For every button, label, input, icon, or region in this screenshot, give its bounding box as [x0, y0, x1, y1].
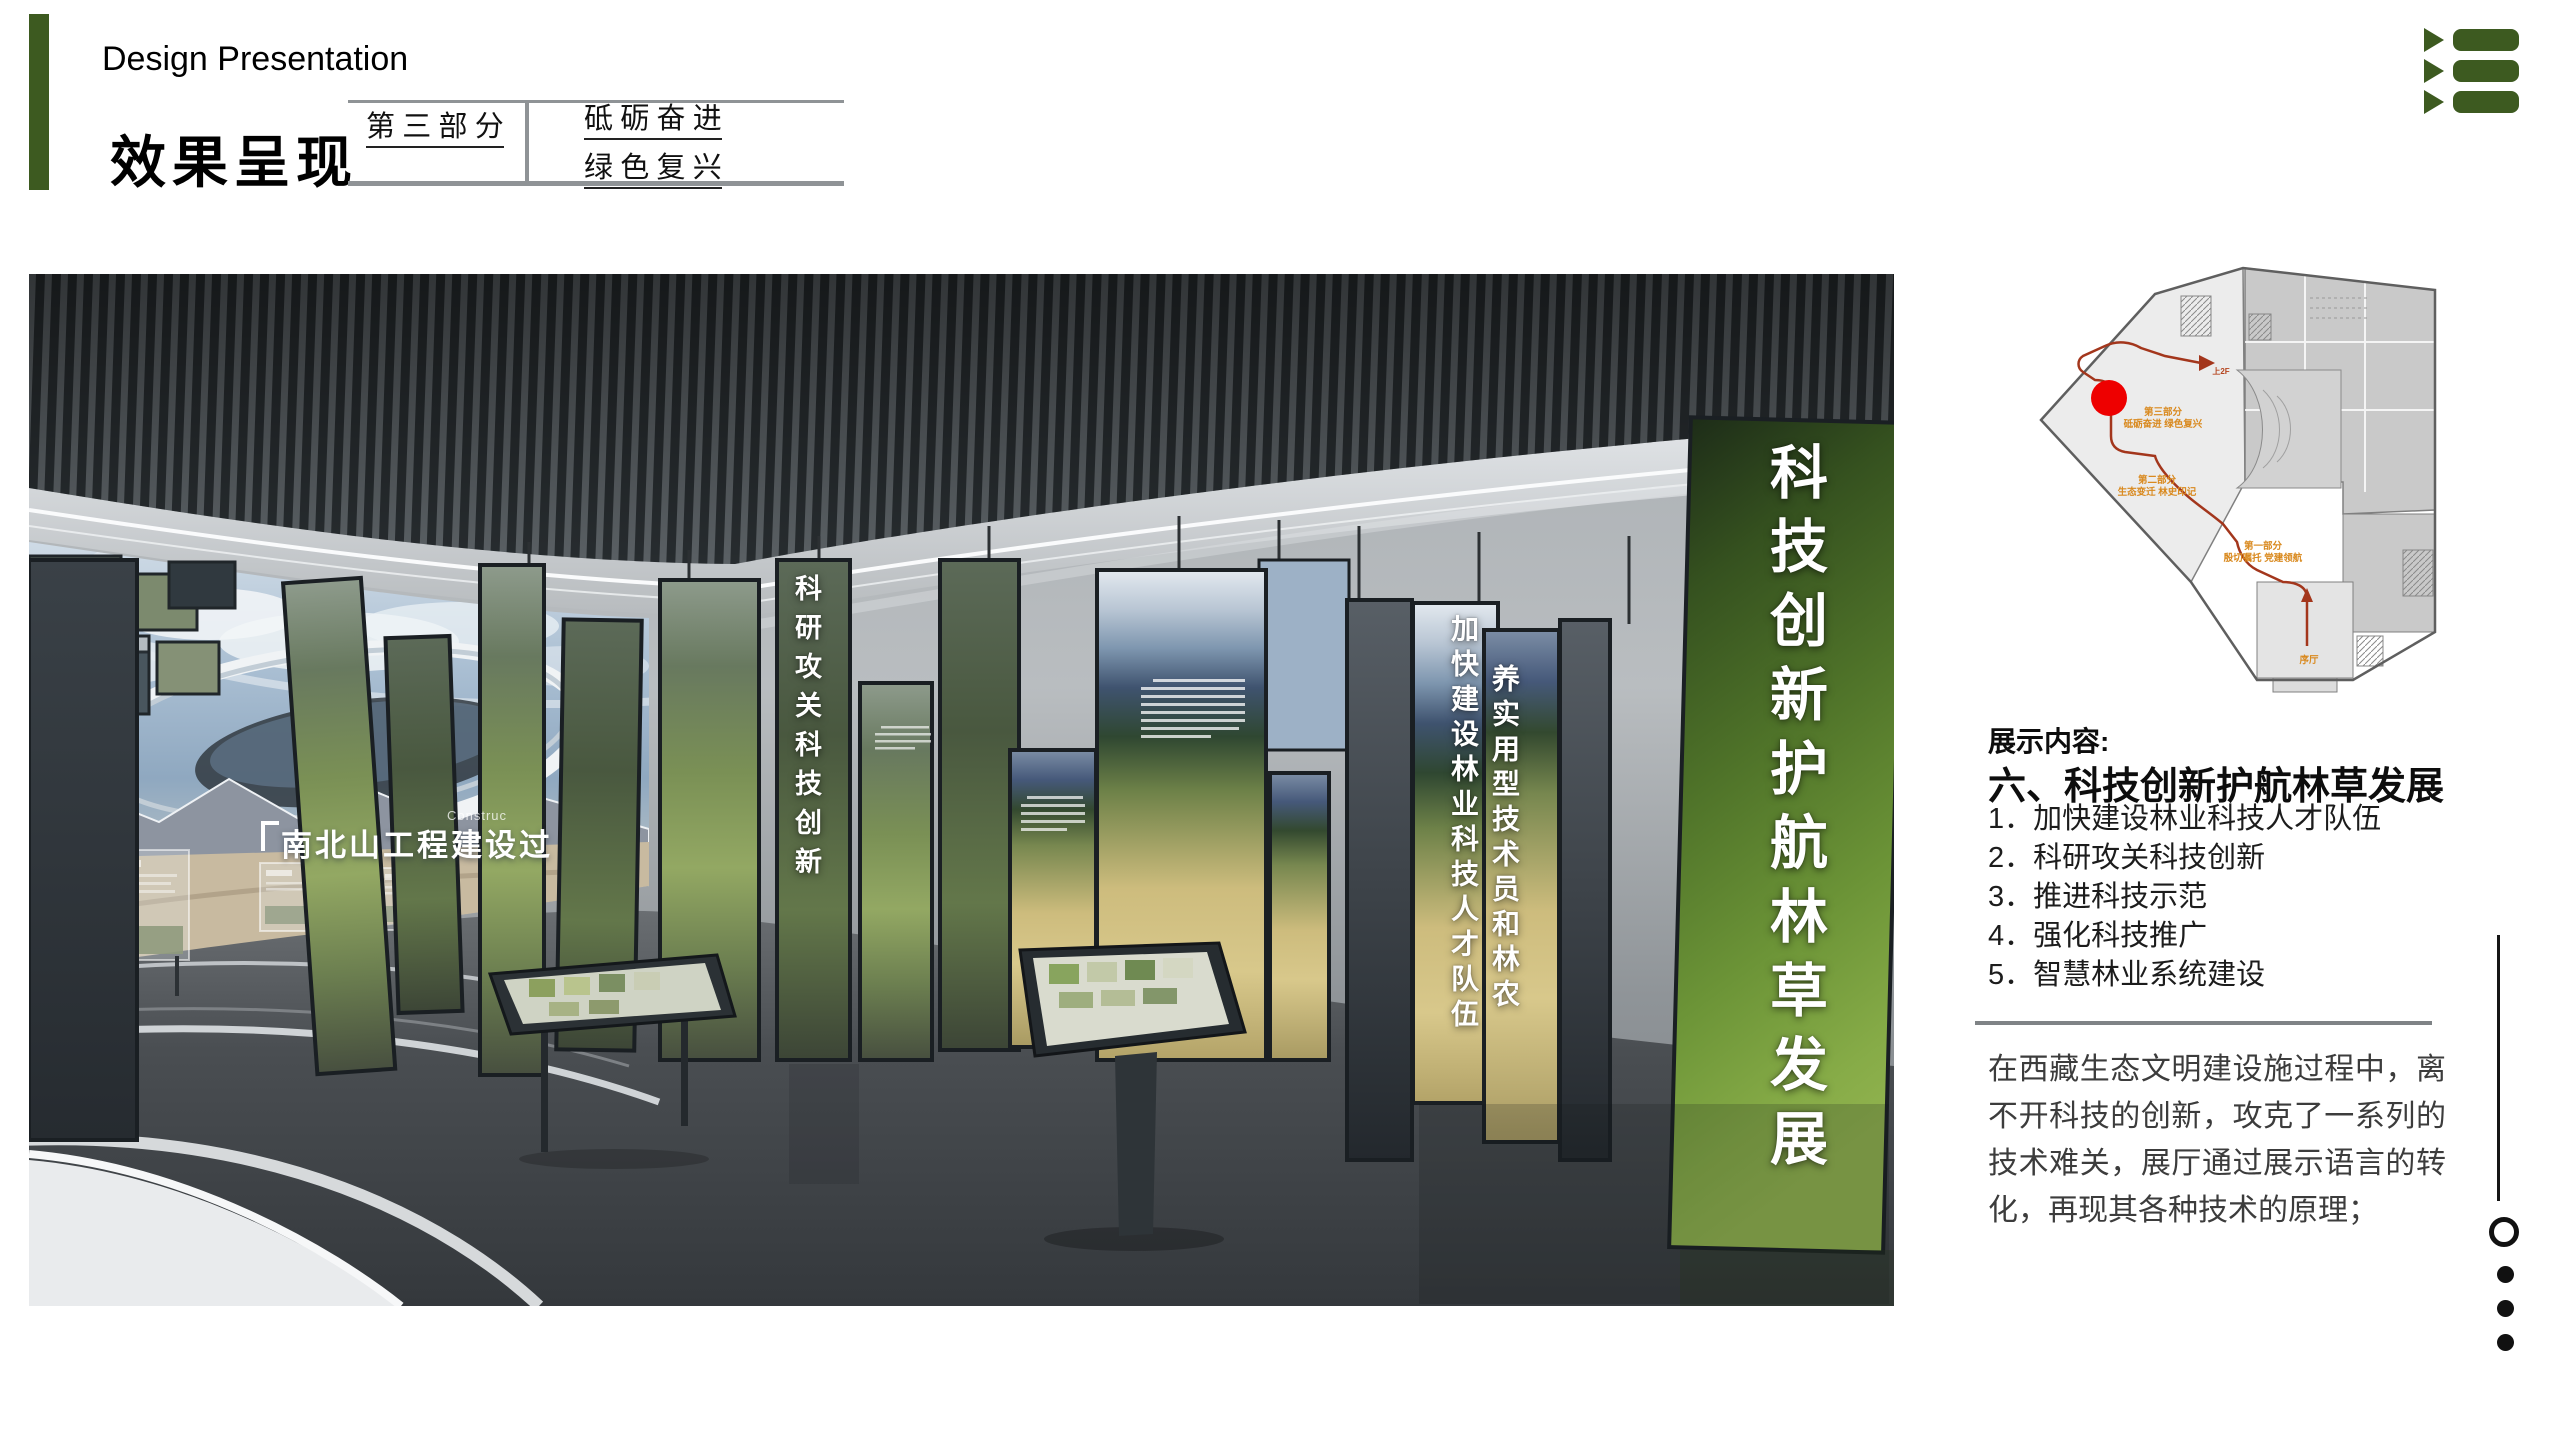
panel-text-keyan: 科研攻关科技创新: [787, 574, 826, 886]
triangle-bullet-icon: [2424, 59, 2444, 83]
content-heading: 展示内容:: [1988, 720, 2109, 760]
menu-bar: [2453, 29, 2519, 51]
part-table: 第 三 部 分 砥 砺 奋 进 绿 色 复 兴: [348, 100, 844, 186]
floorplan-label-part2-sub: 生态变迁 林史印记: [2118, 486, 2197, 498]
content-list-item: 4．强化科技推广: [1988, 917, 2381, 956]
floorplan-label-part2: 第二部分: [2138, 474, 2177, 486]
floorplan-map: 第三部分 砥砺奋进 绿色复兴 第二部分 生态变迁 林史印记 第一部分 殷切嘱托 …: [2005, 250, 2465, 710]
pager-dot[interactable]: [2497, 1266, 2514, 1283]
floorplan-label-lobby: 序厅: [2299, 654, 2319, 666]
panel-text-jiakuai: 加快建设林业科技人才队伍: [1443, 614, 1483, 1034]
menu-row: [2424, 28, 2520, 52]
part-theme-line1: 砥 砺 奋 进: [584, 95, 722, 140]
content-list-item: 2．科研攻关科技创新: [1988, 839, 2381, 878]
content-list-item: 1．加快建设林业科技人才队伍: [1988, 800, 2381, 839]
menu-row: [2424, 90, 2520, 114]
page-title: 效果呈现: [110, 118, 358, 199]
render-scene: [29, 274, 1894, 1306]
triangle-bullet-icon: [2424, 28, 2444, 52]
current-location-dot: [2091, 380, 2127, 416]
floorplan-rooms: [2041, 268, 2435, 692]
part-label: 第 三 部 分: [366, 103, 504, 148]
description-paragraph: 在西藏生态文明建设施过程中，离不开科技的创新，攻克了一系列的技术难关，展厅通过展…: [1988, 1046, 2446, 1234]
menu-row: [2424, 59, 2520, 83]
screen-title-text: 南北山工程建设过: [281, 820, 553, 865]
horizontal-divider: [1975, 1021, 2432, 1025]
vertical-rule: [2497, 935, 2500, 1201]
slide-page: Design Presentation 效果呈现 第 三 部 分 砥 砺 奋 进…: [0, 0, 2560, 1440]
slide-subtitle: Design Presentation: [102, 40, 408, 79]
floorplan-label-to-2f: 上2F: [2212, 366, 2229, 376]
content-list-item: 3．推进科技示范: [1988, 878, 2381, 917]
part-theme-cell: 砥 砺 奋 进 绿 色 复 兴: [529, 103, 844, 181]
panel-text-main-theme: 科技创新护航林草发展: [1751, 442, 1835, 1182]
pager-dot[interactable]: [2497, 1334, 2514, 1351]
accent-bar: [29, 14, 49, 190]
pager-current-indicator[interactable]: [2489, 1217, 2519, 1247]
floorplan-label-part3-sub: 砥砺奋进 绿色复兴: [2124, 418, 2203, 430]
list-menu-icon[interactable]: [2424, 28, 2520, 114]
menu-bar: [2453, 60, 2519, 82]
sky-panel: [1259, 560, 1349, 750]
content-list: 1．加快建设林业科技人才队伍 2．科研攻关科技创新 3．推进科技示范 4．强化科…: [1988, 800, 2381, 995]
panel-text-yang: 养实用型技术员和林农: [1484, 664, 1524, 1014]
part-theme-line2: 绿 色 复 兴: [584, 144, 722, 189]
part-label-cell: 第 三 部 分: [348, 103, 529, 181]
pager-dot[interactable]: [2497, 1300, 2514, 1317]
floorplan-label-part1: 第一部分: [2244, 540, 2283, 552]
screen-title-english: Construc: [447, 808, 507, 823]
floorplan-label-part1-sub: 殷切嘱托 党建领航: [2223, 552, 2303, 564]
dark-glass-panel: [29, 560, 137, 1140]
floorplan-label-part3: 第三部分: [2144, 406, 2183, 418]
menu-bar: [2453, 91, 2519, 113]
exhibition-render-image: 南北山工程建设过 Construc 科研攻关科技创新 加快建设林业科技人才队伍 …: [29, 274, 1894, 1306]
triangle-bullet-icon: [2424, 90, 2444, 114]
content-list-item: 5．智慧林业系统建设: [1988, 956, 2381, 995]
